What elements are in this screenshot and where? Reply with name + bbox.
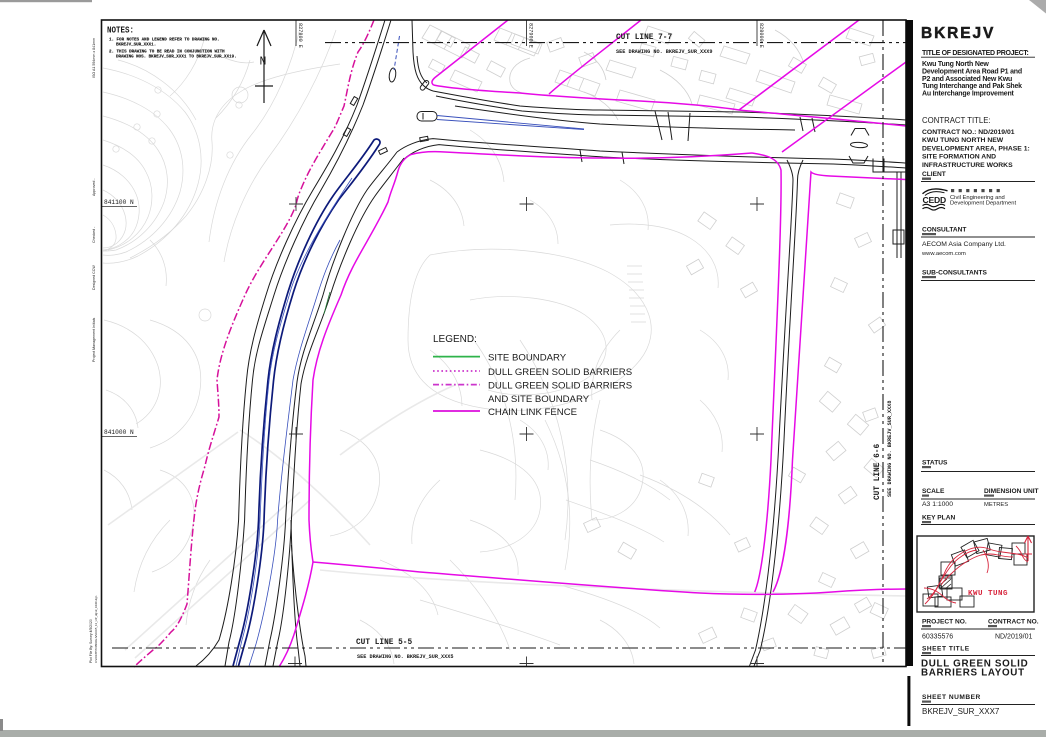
svg-text:CUT LINE 7-7: CUT LINE 7-7 <box>616 34 672 42</box>
svg-text:Designed CCW: Designed CCW <box>92 265 96 290</box>
svg-text:KEY PLAN: KEY PLAN <box>922 515 955 522</box>
svg-text:TITLE OF DESIGNATED PROJECT:: TITLE OF DESIGNATED PROJECT: <box>922 50 1029 57</box>
svg-text:Development Area Road P1 and: Development Area Road P1 and <box>922 68 1022 75</box>
svg-text:CEDD: CEDD <box>923 195 947 205</box>
svg-text:DULL GREEN SOLID BARRIERS: DULL GREEN SOLID BARRIERS <box>488 381 632 392</box>
svg-text:CUT LINE 5-5: CUT LINE 5-5 <box>356 639 412 647</box>
svg-text:SUB-CONSULTANTS: SUB-CONSULTANTS <box>922 270 988 277</box>
svg-text:CUT LINE 6-6: CUT LINE 6-6 <box>874 444 882 500</box>
svg-text:2. THIS DRAWING TO BE READ IN: 2. THIS DRAWING TO BE READ IN CONJUNCTIO… <box>109 51 225 55</box>
svg-text:60335576: 60335576 <box>922 634 953 641</box>
svg-text:DULL GREEN SOLID BARRIERS: DULL GREEN SOLID BARRIERS <box>488 367 632 378</box>
svg-text:A3 1:1000: A3 1:1000 <box>922 501 953 508</box>
svg-text:LEGEND:: LEGEND: <box>433 334 477 345</box>
svg-text:P2 and Associated New Kwu: P2 and Associated New Kwu <box>922 76 1012 83</box>
svg-text:Approved -: Approved - <box>92 178 96 196</box>
svg-text:BARRIERS LAYOUT: BARRIERS LAYOUT <box>921 668 1025 679</box>
svg-text:N: N <box>260 56 267 69</box>
svg-text:Checked -: Checked - <box>92 226 96 243</box>
svg-text:828000 E: 828000 E <box>758 23 764 48</box>
svg-text:AECOM Asia Company Ltd.: AECOM Asia Company Ltd. <box>922 241 1006 248</box>
svg-text:CONTRACT TITLE:: CONTRACT TITLE: <box>922 116 991 125</box>
svg-text:SITE BOUNDARY: SITE BOUNDARY <box>488 353 567 364</box>
svg-text:841100 N: 841100 N <box>104 199 134 206</box>
svg-text:CONSULTANT: CONSULTANT <box>922 227 966 234</box>
svg-text:Development Department: Development Department <box>950 201 1016 207</box>
svg-text:841000 N: 841000 N <box>104 429 134 436</box>
svg-text:X:\60335576\BKREJV\XXX5_13_UP_: X:\60335576\BKREJV\XXX5_13_UP_dgnd_XXXF.… <box>94 595 98 663</box>
svg-text:SEE DRAWING NO. BKREJV_SUR_XXX: SEE DRAWING NO. BKREJV_SUR_XXX5 <box>357 654 454 660</box>
svg-text:CHAIN LINK FENCE: CHAIN LINK FENCE <box>488 407 577 418</box>
svg-text:METRES: METRES <box>984 502 1008 508</box>
svg-text:NOTES:: NOTES: <box>107 25 134 36</box>
svg-text:Kwu Tung North New: Kwu Tung North New <box>922 61 989 68</box>
svg-text:SCALE: SCALE <box>922 488 945 495</box>
svg-text:SHEET TITLE: SHEET TITLE <box>922 646 970 653</box>
svg-text:INFRASTRUCTURE WORKS: INFRASTRUCTURE WORKS <box>922 162 1013 169</box>
svg-text:Plot File By: Survey 4/5/20: Plot File By: Survey 4/5/2020 <box>89 619 93 663</box>
svg-text:www.aecom.com: www.aecom.com <box>921 251 966 257</box>
svg-text:827900 E: 827900 E <box>528 23 534 48</box>
svg-text:DRAWING NOS. BKREJV_SUR_XXX1 T: DRAWING NOS. BKREJV_SUR_XXX1 TO BKREJV_S… <box>116 55 237 59</box>
svg-text:BKREJV: BKREJV <box>921 25 995 42</box>
svg-text:Au Interchange Improvement: Au Interchange Improvement <box>922 91 1015 98</box>
svg-text:1. FOR NOTES AND LEGEND REFER: 1. FOR NOTES AND LEGEND REFER TO DRAWING… <box>109 39 220 43</box>
svg-text:DIMENSION UNIT: DIMENSION UNIT <box>984 488 1039 495</box>
svg-text:KWU TUNG: KWU TUNG <box>968 590 1008 598</box>
svg-text:827800 E: 827800 E <box>297 23 303 48</box>
svg-text:SEE DRAWING NO. BKREJV_SUR_XXX: SEE DRAWING NO. BKREJV_SUR_XXX9 <box>616 49 713 55</box>
svg-text:CONTRACT NO.: ND/2019/01: CONTRACT NO.: ND/2019/01 <box>922 129 1015 136</box>
svg-text:SHEET NUMBER: SHEET NUMBER <box>922 694 981 701</box>
svg-text:CLIENT: CLIENT <box>922 171 946 178</box>
svg-text:ISO A1 594mm x 841mm: ISO A1 594mm x 841mm <box>92 38 96 78</box>
svg-text:CONTRACT NO.: CONTRACT NO. <box>988 619 1039 626</box>
svg-text:KWU TUNG NORTH NEW: KWU TUNG NORTH NEW <box>922 137 1004 144</box>
svg-text:SEE DRAWING NO. BKREJV_SUR_XXX: SEE DRAWING NO. BKREJV_SUR_XXX8 <box>887 400 893 497</box>
svg-text:ND/2019/01: ND/2019/01 <box>995 634 1032 641</box>
svg-text:PROJECT NO.: PROJECT NO. <box>922 619 967 626</box>
svg-text:STATUS: STATUS <box>922 460 948 467</box>
svg-text:BKREJV_SUR_XXX1.: BKREJV_SUR_XXX1. <box>116 43 156 47</box>
svg-text:BKREJV_SUR_XXX7: BKREJV_SUR_XXX7 <box>922 707 1000 716</box>
svg-text:SITE FORMATION AND: SITE FORMATION AND <box>922 154 996 161</box>
svg-text:Project Management Initials: Project Management Initials <box>92 317 96 362</box>
svg-text:DEVELOPMENT AREA, PHASE 1:: DEVELOPMENT AREA, PHASE 1: <box>922 145 1030 152</box>
svg-text:AND SITE BOUNDARY: AND SITE BOUNDARY <box>488 394 590 405</box>
svg-text:Tung Interchange and Pak Shek: Tung Interchange and Pak Shek <box>922 83 1022 90</box>
